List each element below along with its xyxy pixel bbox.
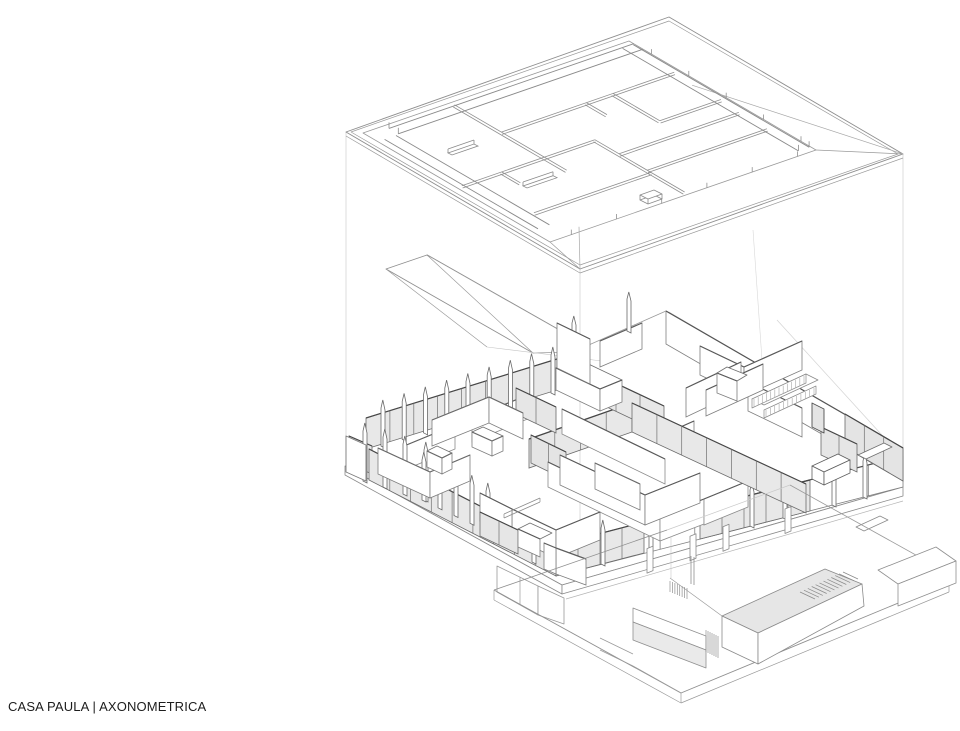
svg-text:CASA PAULA | AXONOMETRICA: CASA PAULA | AXONOMETRICA xyxy=(8,699,207,714)
